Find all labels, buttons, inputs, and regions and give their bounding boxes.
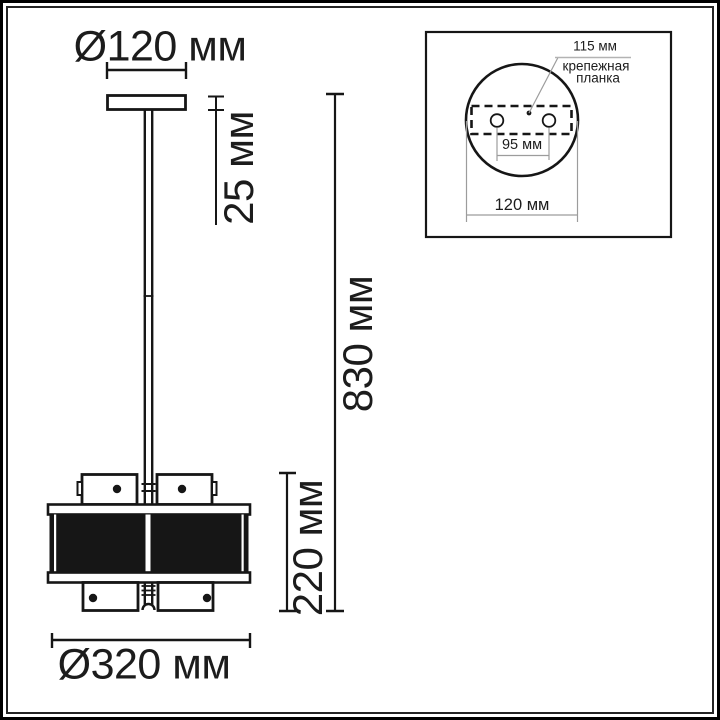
canopy-diameter-label: Ø120 мм — [74, 26, 247, 69]
screw-lower-right — [203, 594, 211, 602]
screw-upper-left — [113, 485, 121, 493]
shade-diameter-label: Ø320 мм — [58, 644, 231, 687]
upper-plate-tab-right — [212, 482, 217, 495]
shade — [48, 505, 250, 583]
shade-height-label: 220 мм — [287, 480, 329, 617]
screw-lower-left — [89, 594, 97, 602]
bracket-caption-line2: планка — [576, 71, 620, 85]
shade-bottom-rim — [48, 573, 250, 583]
bracket-hole-left — [491, 114, 504, 127]
upper-plate-left — [82, 475, 137, 505]
lower-mount-plates — [83, 583, 213, 611]
shade-body-edge-left — [54, 515, 56, 573]
dimension-diagram: Ø120 мм 25 мм 830 мм 220 мм Ø320 мм 115 … — [0, 0, 720, 720]
total-height-label: 830 мм — [337, 276, 379, 413]
bracket-hole-right — [543, 114, 556, 127]
inset-base-circle — [466, 64, 578, 176]
upper-plate-tab-left — [78, 482, 83, 495]
canopy — [108, 96, 186, 110]
canopy-height-label: 25 мм — [218, 111, 260, 225]
finial-dome — [143, 604, 155, 610]
screw-upper-right — [178, 485, 186, 493]
upper-mount-plates — [78, 475, 217, 505]
shade-top-rim — [48, 505, 250, 515]
base-diameter-label: 120 мм — [495, 197, 550, 214]
shade-body-edge-right — [242, 515, 244, 573]
hole-spacing-label: 95 мм — [502, 138, 542, 153]
bracket-width-label: 115 мм — [573, 39, 617, 53]
suspension-rod — [144, 110, 154, 504]
shade-body-divider — [146, 515, 151, 573]
